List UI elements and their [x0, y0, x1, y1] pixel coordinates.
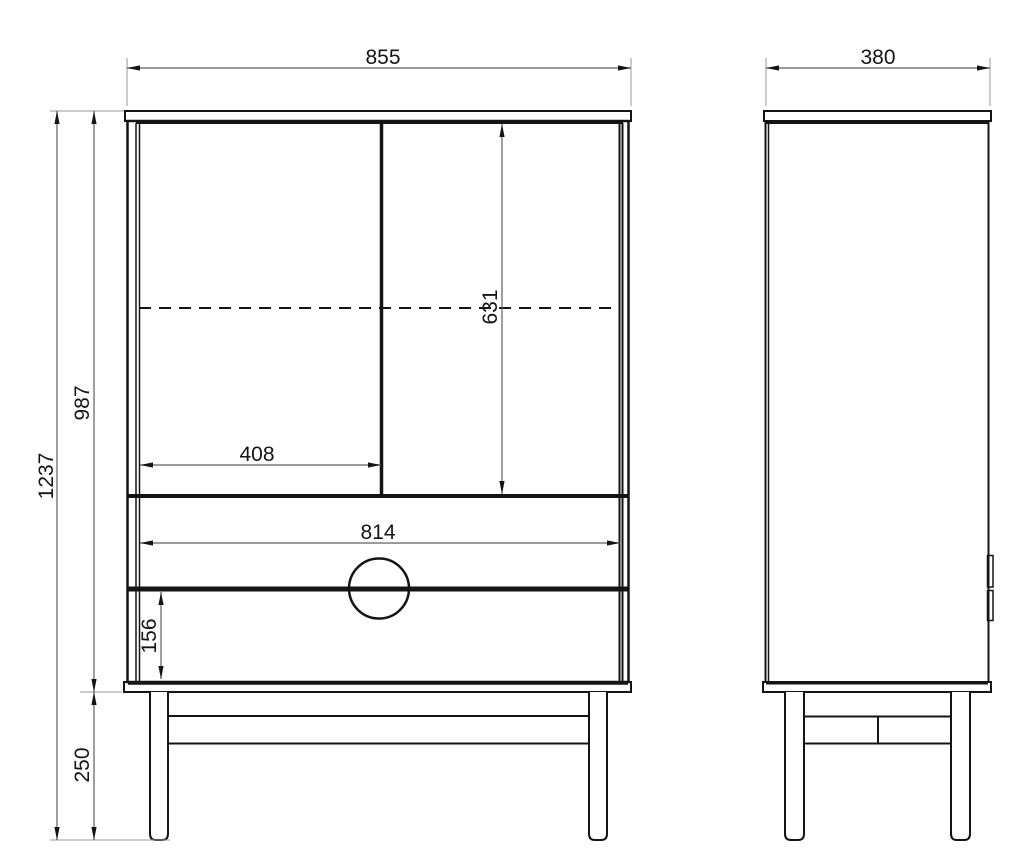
arrowhead — [766, 65, 779, 70]
side-carcass-outline — [766, 121, 989, 682]
arrowhead — [618, 65, 631, 70]
cabinet-technical-drawing: 855 380 1237 987 — [0, 0, 1036, 868]
front-right-leg — [589, 692, 607, 840]
technical-drawing-page: 855 380 1237 987 — [0, 0, 1036, 868]
dim-leg-height: 250 — [71, 692, 97, 840]
arrowhead — [158, 592, 163, 605]
arrowhead — [127, 65, 140, 70]
dim-overall-depth: 380 — [766, 46, 990, 106]
dim-overall-depth-label: 380 — [860, 46, 895, 69]
dim-carcass-height-label: 987 — [71, 385, 94, 420]
dim-bottom-drawer-height-label: 156 — [138, 618, 161, 653]
side-top-panel — [764, 111, 991, 121]
dim-carcass-height: 987 — [71, 111, 97, 692]
dim-leg-height-label: 250 — [71, 747, 94, 782]
arrowhead — [91, 692, 96, 705]
arrowhead — [54, 827, 59, 840]
arrowhead — [368, 462, 381, 467]
front-view — [124, 111, 631, 840]
front-carcass-outline — [128, 121, 629, 682]
arrowhead — [140, 540, 153, 545]
arrowhead — [140, 462, 153, 467]
side-left-leg — [785, 692, 804, 840]
arrowhead — [499, 124, 504, 137]
dim-overall-height-label: 1237 — [35, 453, 58, 500]
arrowhead — [91, 111, 96, 124]
arrowhead — [91, 827, 96, 840]
arrowhead — [499, 481, 504, 494]
dim-bottom-drawer-height: 156 — [138, 592, 164, 679]
arrowhead — [607, 540, 620, 545]
dim-drawer-width: 814 — [140, 521, 620, 546]
dim-door-height-label: 631 — [479, 289, 502, 324]
arrowhead — [54, 111, 59, 124]
dimension-annotations: 855 380 1237 987 — [35, 46, 990, 840]
dim-left-door-width-label: 408 — [239, 443, 274, 466]
arrowhead — [158, 666, 163, 679]
front-left-leg — [150, 692, 168, 840]
dim-overall-width: 855 — [127, 46, 631, 106]
front-top-panel — [125, 111, 631, 121]
side-right-leg — [951, 692, 970, 840]
dim-door-height: 631 — [479, 124, 505, 494]
dim-left-door-width: 408 — [140, 443, 381, 468]
dim-drawer-width-label: 814 — [360, 521, 395, 544]
dim-overall-width-label: 855 — [365, 46, 400, 69]
arrowhead — [91, 679, 96, 692]
dim-overall-height: 1237 — [35, 111, 60, 840]
side-view — [763, 111, 993, 840]
arrowhead — [977, 65, 990, 70]
